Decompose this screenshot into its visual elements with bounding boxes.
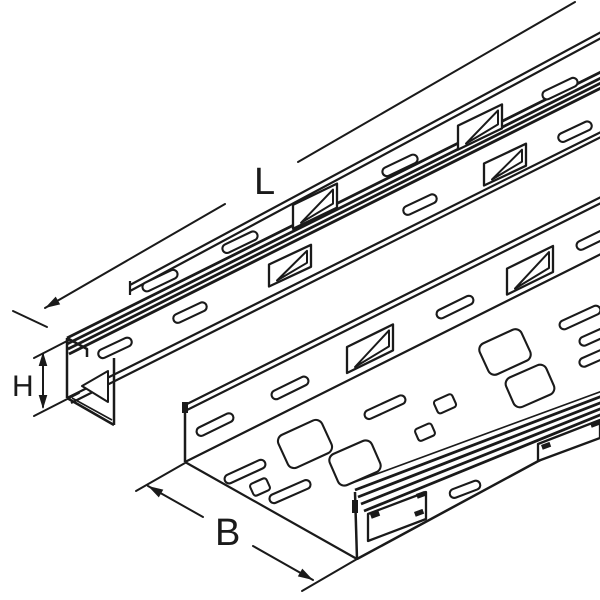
perforation-square xyxy=(433,393,457,414)
lower-tray-near-wall-perforations xyxy=(448,479,481,499)
h-arrowhead-bottom xyxy=(39,395,48,409)
perforation-slot xyxy=(195,412,235,438)
perforation-slot xyxy=(558,304,600,331)
perforation-slot xyxy=(575,226,600,252)
dimension-b: B xyxy=(136,463,357,591)
l-dimension-label: L xyxy=(254,161,275,203)
perforation-square xyxy=(477,327,533,377)
perforation-slot xyxy=(578,321,600,347)
upper-tray xyxy=(67,30,600,425)
h-extension-line-top xyxy=(34,340,69,358)
h-dimension-label: H xyxy=(12,370,34,403)
lower-tray-floor-far-edge xyxy=(185,252,600,462)
perforation-square xyxy=(249,477,271,496)
perforation-slot xyxy=(97,336,133,359)
b-arrowhead-left xyxy=(148,486,163,497)
b-arrowhead-right xyxy=(298,569,313,580)
perforation-square xyxy=(276,418,335,471)
perforation-slot xyxy=(435,294,475,320)
b-extension-line-right xyxy=(302,559,357,591)
upper-tray-near-rail xyxy=(67,70,600,354)
upper-tray-far-rail xyxy=(130,30,600,291)
l-extension-tick xyxy=(13,311,47,327)
b-extension-line-left xyxy=(136,463,185,491)
dimension-h: H xyxy=(12,340,79,416)
upper-tray-far-wall-perforations xyxy=(141,76,579,293)
perforation-slot xyxy=(578,342,600,368)
perforation-square xyxy=(503,363,556,410)
perforation-slot xyxy=(402,193,438,216)
lower-tray-end-cut-edge xyxy=(185,462,357,559)
upper-tray-end-knockout-triangle xyxy=(82,371,108,402)
perforation-slot xyxy=(172,301,208,324)
perforation-slot xyxy=(141,268,179,293)
b-dimension-label: B xyxy=(215,512,240,554)
perforation-slot xyxy=(448,479,481,499)
cable-tray-drawing: L H B xyxy=(0,0,600,600)
cable-tray-technical-drawing: L H B xyxy=(0,0,600,600)
lower-tray-floor-perforations xyxy=(223,304,600,504)
perforation-slot xyxy=(268,479,312,505)
upper-tray-near-wall-perforations xyxy=(97,120,593,360)
lower-tray-near-rail-endcap xyxy=(352,500,358,513)
perforation-slot xyxy=(557,120,593,143)
perforation-square xyxy=(327,438,383,488)
perforation-square xyxy=(414,423,436,442)
perforation-slot xyxy=(363,394,407,421)
l-arrowhead xyxy=(45,297,60,308)
perforation-slot xyxy=(270,375,310,401)
